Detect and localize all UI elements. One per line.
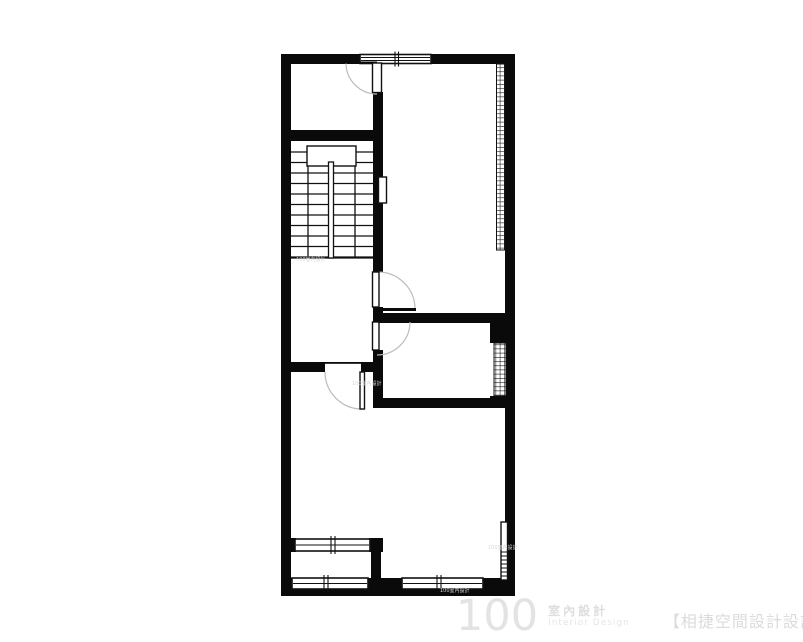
watermark-subtitle-en: Interior Design (548, 618, 630, 629)
hall-door-header-line (325, 362, 361, 364)
watermark: 100 室內設計 Interior Design 【相捷空間設計設計事務所】 (456, 601, 803, 632)
middle-room-lower-chunk (490, 396, 515, 408)
middle-room-door-leaf (373, 322, 380, 350)
stair-wall-niche (379, 177, 387, 203)
bedroom-divider-wall (373, 313, 505, 323)
micro-watermark: 100室內設計 (440, 589, 470, 594)
watermark-logo-text: 室內設計 Interior Design (548, 605, 630, 629)
stair-center-rail (329, 162, 334, 258)
micro-watermark: 100室內設計 (488, 546, 518, 551)
watermark-studio-credit: 【相捷空間設計設計事務所】 (664, 608, 803, 632)
micro-watermark: 100室內設計 (296, 258, 326, 263)
bedroom-wardrobe-hatch (497, 64, 506, 250)
hall-door-swing-arc (325, 372, 362, 409)
hall-bottom-wall-right (361, 362, 383, 372)
floor-plan (0, 0, 803, 642)
floor-plan-page: 100 室內設計 Interior Design 【相捷空間設計設計事務所】 1… (0, 0, 803, 642)
bedroom-door-swing-arc (378, 272, 415, 309)
balcony-right-wall (371, 552, 381, 578)
watermark-logo-100: 100 (456, 601, 538, 631)
watermark-title-zh: 室內設計 (548, 605, 630, 618)
hall-bottom-wall-left (281, 362, 325, 372)
hall-door-leaf (360, 372, 365, 409)
right-wall-vent-strip (501, 522, 508, 580)
middle-room-corner-chunk (490, 323, 515, 343)
front-room-door-header-line (340, 62, 377, 64)
bedroom-door-leaf (373, 272, 380, 307)
bedroom-door-open-leaf (379, 308, 416, 311)
front-room-door-leaf (373, 63, 382, 93)
front-room-bottom-wall (281, 130, 383, 141)
top-exterior-wall-right (430, 54, 515, 64)
balcony-wall-left-seg (281, 538, 296, 552)
micro-watermark: 100室內設計 (352, 382, 382, 387)
balcony-wall-right-seg (369, 538, 383, 552)
middle-room-wardrobe-hatch (494, 343, 506, 396)
